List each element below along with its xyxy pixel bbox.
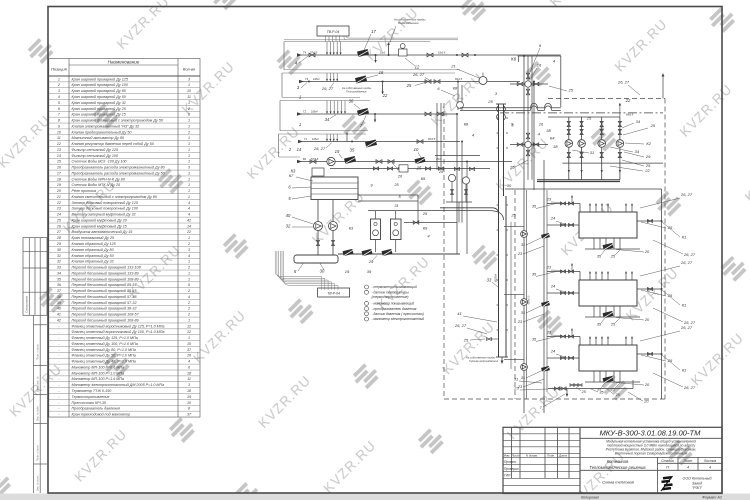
svg-text:Затвор дисковый поворотный Ду: Затвор дисковый поворотный Ду 100 [72,207,139,211]
svg-text:Подп.: Подп. [547,453,555,457]
svg-text:31: 31 [394,204,398,208]
svg-text:К7: К7 [289,173,294,178]
svg-text:4: 4 [188,201,190,205]
svg-text:42: 42 [57,318,61,322]
svg-text:Кран шаровой приварной Ду 15: Кран шаровой приварной Ду 15 [72,113,127,117]
svg-text:Счетчик Воды МТК-N Ду 25: Счетчик Воды МТК-N Ду 25 [72,183,122,187]
svg-text:Листов: Листов [703,459,717,463]
svg-text:17: 17 [371,29,376,34]
svg-text:Реле протока: Реле протока [72,189,97,193]
svg-text:16: 16 [379,70,384,75]
svg-text:Взам. инв. №: Взам. инв. № [37,376,40,392]
svg-text:42: 42 [187,218,191,222]
svg-text:(термосопротивление): (термосопротивление) [372,295,409,299]
svg-text:25: 25 [406,83,412,88]
svg-text:89х3.5: 89х3.5 [428,138,436,141]
svg-text:9: 9 [58,124,60,128]
svg-text:34: 34 [57,271,61,275]
svg-text:2: 2 [187,289,190,293]
svg-text:2: 2 [187,107,190,111]
svg-text:41: 41 [57,313,61,317]
svg-text:К1: К1 [682,368,687,373]
svg-text:Кол-во: Кол-во [183,67,196,72]
svg-text:22: 22 [186,230,191,234]
svg-text:11: 11 [187,95,191,99]
svg-text:1: 1 [58,77,60,81]
svg-text:Горячее водоснабжение: Горячее водоснабжение [469,359,499,363]
svg-text:Изм.: Изм. [504,453,511,457]
svg-text:11: 11 [57,136,61,140]
svg-text:25: 25 [510,214,516,218]
svg-text:63х3.5: 63х3.5 [438,51,446,54]
svg-text:Термосопротивление: Термосопротивление [72,395,110,399]
svg-text:11: 11 [187,377,191,381]
svg-text:14: 14 [297,147,302,152]
svg-text:Фильтр сетчатый Ду 125: Фильтр сетчатый Ду 125 [72,148,119,152]
svg-text:Лист: Лист [511,453,520,457]
svg-text:29: 29 [645,154,651,159]
svg-text:22: 22 [382,93,388,98]
svg-text:Воздушник автоматический Ду 15: Воздушник автоматический Ду 15 [72,230,134,234]
svg-text:23: 23 [517,251,523,256]
svg-text:2: 2 [187,266,190,270]
svg-text:2: 2 [187,301,190,305]
svg-text:Схема тепловая: Схема тепловая [602,480,635,485]
svg-text:12: 12 [415,65,420,70]
svg-text:10: 10 [414,147,419,152]
svg-text:14: 14 [187,224,191,228]
svg-text:21: 21 [450,64,455,69]
svg-text:Клапан обратный Ду 50: Клапан обратный Ду 50 [72,254,115,258]
svg-text:2: 2 [57,83,60,87]
svg-text:108х4: 108х4 [313,78,320,81]
svg-text:30: 30 [507,183,512,188]
svg-text:23: 23 [546,197,552,202]
svg-text:31: 31 [57,254,61,258]
svg-text:32: 32 [57,260,61,264]
svg-text:Водоснабжение: Водоснабжение [398,21,419,25]
svg-text:К4: К4 [550,136,555,141]
svg-text:1: 1 [188,124,190,128]
svg-text:Инв. № дубл.: Инв. № дубл. [37,405,40,421]
svg-text:Ф89х3.5: Ф89х3.5 [528,295,531,304]
svg-text:На собственные нужды: На собственные нужды [342,86,371,90]
svg-text:Кран шаровой приварной Ду 50: Кран шаровой приварной Ду 50 [72,95,127,99]
svg-text:Котельная.: Котельная. [607,459,630,464]
svg-text:24: 24 [550,349,556,354]
svg-text:34: 34 [635,149,640,154]
svg-text:Фланец ответный воротниковый Д: Фланец ответный воротниковый Ду 100, Р=1… [72,330,165,334]
svg-text:Манометр МП-100 Р=1.0 МПа: Манометр МП-100 Р=1.0 МПа [72,371,125,375]
svg-text:1: 1 [188,189,190,193]
svg-text:20: 20 [644,249,650,254]
svg-text:16: 16 [539,122,544,127]
svg-text:24: 24 [550,216,556,221]
svg-text:Фланец ответный воротниковый Д: Фланец ответный воротниковый Ду 125, Р=1… [72,324,165,328]
svg-text:89х3.5: 89х3.5 [455,78,463,81]
svg-text:1: 1 [188,260,190,264]
svg-text:Манометр МП-100 Р=1.6 МПа: Манометр МП-100 Р=1.6 МПа [72,377,125,381]
svg-text:Переход бесшовный приварной 5: Переход бесшовный приварной 57-45 [72,295,138,299]
svg-text:Кран шаровой муфтовый Ду 20: Кран шаровой муфтовый Ду 20 [72,218,128,222]
svg-text:25: 25 [610,322,616,327]
svg-text:1: 1 [188,119,190,123]
svg-text:41: 41 [457,311,461,316]
svg-text:Прессостат КРI-35: Прессостат КРI-35 [72,401,107,405]
svg-text:26: 26 [397,175,403,179]
svg-text:1: 1 [188,83,190,87]
svg-text:Инв. № подл.: Инв. № подл. [37,475,40,491]
svg-text:30: 30 [320,269,325,274]
svg-text:Преобразователь давления: Преобразователь давления [72,407,121,411]
svg-text:26, 27: 26, 27 [680,260,693,265]
svg-text:Кран шаровой приварной Ду 32: Кран шаровой приварной Ду 32 [72,101,126,105]
svg-text:К2: К2 [646,141,651,146]
svg-text:- датчик температуры: - датчик температуры [372,291,410,295]
svg-text:23: 23 [513,386,519,391]
svg-text:2: 2 [187,242,190,246]
svg-text:39: 39 [57,301,61,305]
svg-text:Переход бесшовный приварной 1: Переход бесшовный приварной 133-89 [72,271,139,275]
svg-text:26, 27: 26, 27 [313,146,326,151]
svg-text:31: 31 [514,377,518,382]
svg-text:1: 1 [188,160,190,164]
svg-text:Фланец ответный Ду 80, Р=1.0 М: Фланец ответный Ду 80, Р=1.0 МПа [72,348,136,352]
svg-text:Счетчик Воды ВСХ -100 Ду 100: Счетчик Воды ВСХ -100 Ду 100 [72,160,128,164]
svg-text:Преобразователь расхода электр: Преобразователь расхода электромагнитный… [72,166,166,170]
svg-text:26, 27: 26, 27 [617,80,630,85]
svg-text:1: 1 [188,171,190,175]
svg-text:"РЭП": "РЭП" [692,486,703,490]
svg-text:Фланец ответный Ду 125, Р=1.0: Фланец ответный Ду 125, Р=1.0 МПа [72,336,138,340]
svg-text:Клапан электромагнитный "НЗ" Д: Клапан электромагнитный "НЗ" Ду 32 [72,124,140,128]
svg-text:25: 25 [487,99,493,104]
svg-text:1: 1 [188,195,190,199]
svg-text:40: 40 [286,213,291,218]
svg-text:26, 27: 26, 27 [412,72,425,77]
svg-text:32: 32 [286,223,291,228]
svg-text:23: 23 [546,265,552,270]
svg-text:16: 16 [537,63,542,68]
svg-text:89х3.5: 89х3.5 [626,114,634,117]
svg-text:2: 2 [187,307,190,311]
svg-text:Счетчик Воды WPH-N-K Ду 80: Счетчик Воды WPH-N-K Ду 80 [72,177,126,181]
svg-text:19: 19 [57,183,61,187]
svg-text:Кран трехходовой под манометр: Кран трехходовой под манометр [72,413,130,417]
svg-text:36: 36 [349,99,354,104]
svg-text:Теплоснабжение: Теплоснабжение [346,90,367,94]
svg-text:Переход бесшовный приварной 5: Переход бесшовный приварной 57-32 [72,301,137,305]
svg-text:26, 27: 26, 27 [680,325,693,330]
svg-text:Переход бесшовный приварной 1: Переход бесшовный приварной 133-108 [72,266,142,270]
svg-text:Ф108х4: Ф108х4 [495,273,498,282]
svg-text:Лист: Лист [683,459,693,463]
svg-text:К6: К6 [511,57,517,62]
svg-text:26, 27: 26, 27 [683,385,696,390]
svg-text:ООО Котельный: ООО Котельный [683,477,712,481]
svg-text:Клапан смесительный с электроп: Клапан смесительный с электроприводом Ду… [72,195,158,199]
svg-text:31: 31 [590,150,594,155]
svg-text:1: 1 [188,142,190,146]
svg-text:25: 25 [667,358,673,363]
svg-text:31: 31 [521,310,525,315]
svg-text:26, 27: 26, 27 [321,86,334,91]
svg-text:ТВ-Р-04: ТВ-Р-04 [327,30,340,34]
svg-text:26, 27: 26, 27 [680,192,693,197]
svg-text:22: 22 [56,201,61,205]
svg-text:Клапан регулятор давления пере: Клапан регулятор давления перед собой Ду… [72,142,155,146]
svg-text:22: 22 [625,98,631,103]
svg-text:Проект.: Проект. [504,460,517,464]
svg-text:Переход бесшовный приварной 1: Переход бесшовный приварной 108-89 [72,318,139,322]
svg-text:На собственные нужды: На собственные нужды [466,356,495,360]
svg-text:1: 1 [188,183,190,187]
svg-text:4: 4 [687,466,689,470]
svg-text:25: 25 [586,116,592,121]
svg-text:Кран шаровой приварной Ду 80: Кран шаровой приварной Ду 80 [72,89,127,93]
svg-text:1: 1 [188,236,190,240]
svg-text:Затвор дисковый поворотный Ду: Затвор дисковый поворотный Ду 125 [72,201,139,205]
svg-text:26, 27: 26, 27 [683,252,696,257]
svg-text:Манометр МП-100 Р=0.6 МПа: Манометр МП-100 Р=0.6 МПа [72,365,125,369]
svg-text:2: 2 [187,130,190,134]
svg-text:К1: К1 [682,235,687,240]
svg-text:- преобразователь давления: - преобразователь давления [372,307,417,311]
svg-text:4: 4 [188,254,190,258]
svg-text:1: 1 [188,177,190,181]
svg-text:Завод: Завод [692,481,702,485]
svg-text:12: 12 [57,142,61,146]
svg-text:29: 29 [56,242,61,246]
svg-text:- манометр показывающий: - манометр показывающий [372,302,415,306]
svg-text:25: 25 [567,88,573,93]
svg-text:53х3: 53х3 [380,51,386,54]
svg-text:Магнитный активатор Ду 80: Магнитный активатор Ду 80 [72,136,126,140]
svg-text:12: 12 [187,330,191,334]
svg-text:1: 1 [188,148,190,152]
svg-text:Фланец ответный Ду 50, Р=1.0 М: Фланец ответный Ду 50, Р=1.0 МПа [72,354,136,358]
svg-text:Переход бесшовный приварной 1: Переход бесшовный приварной 108-89 [72,277,139,281]
svg-text:П: П [666,466,669,470]
svg-text:1: 1 [188,336,190,340]
svg-text:31: 31 [521,242,525,247]
svg-text:- термометр показывающий: - термометр показывающий [372,285,418,289]
svg-text:20: 20 [643,399,649,404]
svg-text:25: 25 [438,170,443,174]
svg-text:Наименование: Наименование [108,60,140,65]
svg-text:Дата: Дата [558,453,567,457]
svg-text:МКУ-В-300-3.01.08.19.00-ТМ: МКУ-В-300-3.01.08.19.00-ТМ [599,428,701,437]
svg-text:Кран поплавковый Ду 25: Кран поплавковый Ду 25 [72,236,116,240]
svg-text:25: 25 [463,338,469,343]
svg-text:Клапан обратный Ду 125: Клапан обратный Ду 125 [72,242,117,246]
svg-text:Копировал: Копировал [581,495,599,499]
svg-text:Подп. и дата: Подп. и дата [37,344,40,360]
svg-text:Формат А2: Формат А2 [702,495,722,499]
svg-text:20: 20 [644,382,650,387]
svg-text:Переход бесшовный приварной 8: Переход бесшовный приварной 89-57 [72,283,138,287]
svg-text:1: 1 [188,101,190,105]
svg-text:25: 25 [509,164,515,169]
svg-text:Клапан обратный Ду 80: Клапан обратный Ду 80 [72,248,115,252]
svg-text:N докум.: N докум. [526,453,538,457]
svg-text:1: 1 [299,95,301,100]
svg-text:4: 4 [58,95,60,99]
svg-text:1: 1 [188,277,190,281]
svg-text:Кран шаровой муфтовый Ду 15: Кран шаровой муфтовый Ду 15 [72,224,128,228]
svg-text:Кран шаровой приварной Ду 25: Кран шаровой приварной Ду 25 [72,107,127,111]
svg-text:- манометр электроконтактный: - манометр электроконтактный [372,317,425,321]
svg-text:Фланец ответный Ду 100, Р=1.0: Фланец ответный Ду 100, Р=1.0 МПа [72,342,138,346]
svg-text:Кран шаровой фланцевый с элект: Кран шаровой фланцевый с электроприводом… [72,119,164,123]
svg-text:25: 25 [610,387,616,392]
svg-text:Переход бесшовный приварной 1: Переход бесшовный приварной 108-57 [72,313,140,317]
svg-text:Клапан обратный Ду 32: Клапан обратный Ду 32 [72,260,114,264]
svg-text:25: 25 [667,225,673,230]
svg-text:Клапан предохранительный Ду 50: Клапан предохранительный Ду 50 [72,130,133,134]
svg-text:Фильтр сетчатый Ду 100: Фильтр сетчатый Ду 100 [72,154,119,158]
svg-text:1: 1 [188,271,190,275]
svg-text:24: 24 [56,213,61,217]
svg-text:Проверил: Проверил [504,467,519,471]
svg-text:Кран шаровой приварной Ду 100: Кран шаровой приварной Ду 100 [72,83,129,87]
svg-text:38: 38 [553,144,558,149]
svg-text:33: 33 [487,278,492,283]
svg-text:ТВ-Р-04: ТВ-Р-04 [327,292,340,296]
svg-text:ГИП: ГИП [504,474,511,478]
svg-text:- датчик давления ( прессоста: - датчик давления ( прессостат) [372,312,424,316]
svg-text:24: 24 [550,284,556,289]
svg-text:108х4: 108х4 [312,138,319,141]
svg-text:4: 4 [709,466,711,470]
svg-text:4: 4 [188,360,190,364]
svg-text:1: 1 [188,136,190,140]
svg-text:39: 39 [367,269,372,274]
svg-text:25: 25 [393,183,399,187]
svg-text:25: 25 [650,123,656,128]
svg-text:14: 14 [57,154,61,158]
svg-text:25: 25 [667,293,673,298]
svg-text:4: 4 [188,295,190,299]
svg-text:15: 15 [335,149,340,154]
svg-text:Кран шаровой приварной Ду 125: Кран шаровой приварной Ду 125 [72,77,129,81]
svg-text:25: 25 [422,211,428,216]
svg-text:В1: В1 [303,157,307,161]
svg-text:34: 34 [325,117,330,122]
svg-text:1: 1 [188,154,190,158]
svg-text:21: 21 [56,195,61,199]
svg-text:34: 34 [636,119,641,124]
svg-text:Стадия: Стадия [661,459,674,463]
svg-text:38: 38 [546,128,551,133]
svg-text:Преобразователь расхода электр: Преобразователь расхода электромагнитный… [72,171,166,175]
svg-text:4: 4 [188,213,190,217]
svg-text:12: 12 [187,324,191,328]
svg-text:31: 31 [521,375,525,380]
svg-text:25: 25 [610,254,616,259]
svg-text:К1: К1 [682,303,687,308]
svg-text:26, 27: 26, 27 [454,323,467,328]
svg-text:108х4: 108х4 [311,111,318,114]
svg-text:Согласовано: Согласовано [25,295,29,313]
svg-text:К9: К9 [423,225,428,230]
svg-text:23: 23 [546,330,552,335]
svg-text:4: 4 [188,207,190,211]
svg-text:Переход бесшовный приварной 8: Переход бесшовный приварной 89-45 [72,289,138,293]
svg-text:К3: К3 [349,225,354,230]
svg-text:2: 2 [187,313,190,317]
svg-text:Переход бесшовный приварной 3: Переход бесшовный приварной 38-32 [72,307,137,311]
svg-text:Фланец ответный Ду 40, Р=1.0 М: Фланец ответный Ду 40, Р=1.0 МПа [72,360,136,364]
svg-text:19: 19 [345,269,350,274]
svg-text:Манометр электроконтактный ДМ: Манометр электроконтактный ДМ 2005 Р=1.0… [72,383,165,387]
svg-text:Позиция: Позиция [51,67,68,72]
svg-text:1: 1 [299,122,301,127]
svg-text:35: 35 [350,147,355,152]
svg-text:Восточный портал Северомуйског: Восточный портал Северомуйского тоннеля [615,452,688,456]
svg-text:Вентиль запорный муфтовый Ду 3: Вентиль запорный муфтовый Ду 32 [72,213,136,217]
svg-text:1: 1 [188,318,190,322]
svg-text:Тепломеханические решения.: Тепломеханические решения. [589,465,646,470]
svg-text:Термометр ТТЖ 0-150: Термометр ТТЖ 0-150 [72,389,113,393]
svg-text:23: 23 [517,319,523,324]
svg-text:25: 25 [416,165,422,170]
svg-text:22: 22 [644,168,650,173]
svg-text:20: 20 [644,317,650,322]
svg-text:Подп. и дата: Подп. и дата [37,445,40,461]
